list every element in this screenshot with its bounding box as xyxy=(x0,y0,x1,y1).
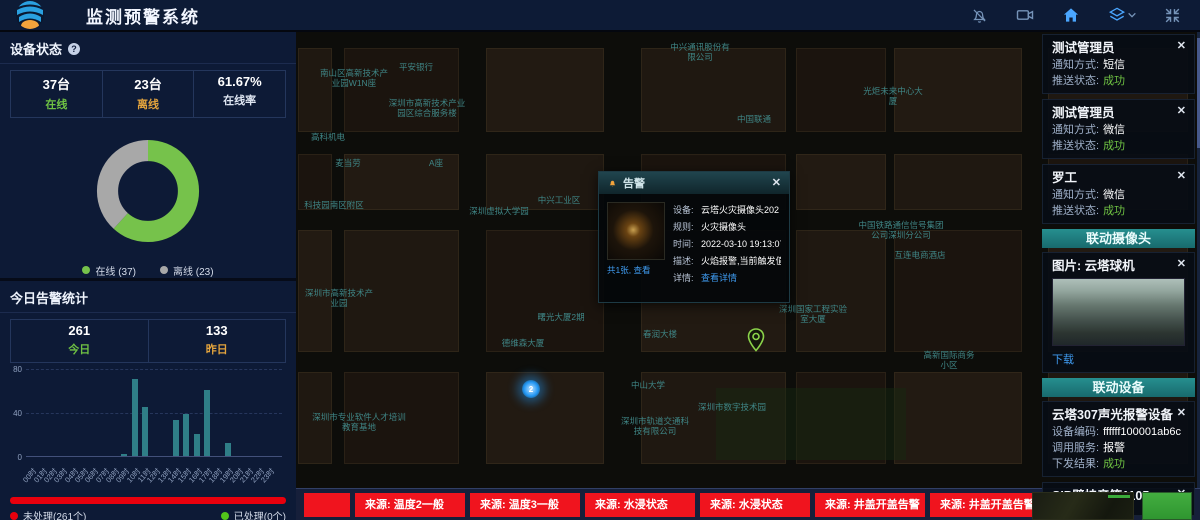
unhandled-label: 未处理(261个) xyxy=(23,508,86,520)
card-field-row: 调用服务:报警 xyxy=(1052,442,1185,455)
alert-popup-body: 共1张, 查看 设备:云塔火灾摄像头202规则:火灾摄像头时间:2022-03-… xyxy=(599,194,789,293)
alert-field-label: 设备: xyxy=(673,202,701,219)
camera-snapshot-title: 图片: 云塔球机 xyxy=(1052,259,1185,274)
rail-card: 罗工✕通知方式:微信推送状态:成功 xyxy=(1042,164,1195,224)
map-label: 深圳市数字技术园 xyxy=(694,402,770,412)
map-label: 中国联通 xyxy=(732,114,776,124)
y-axis-tick: 80 xyxy=(8,365,22,374)
unhandled-progress-track xyxy=(10,497,286,504)
alert-popup-header: 告警 ✕ xyxy=(599,172,789,194)
close-icon[interactable]: ✕ xyxy=(1177,106,1186,117)
card-field-value: 报警 xyxy=(1103,442,1125,455)
stat-cell: 23台离线 xyxy=(103,71,195,117)
close-icon[interactable]: ✕ xyxy=(1177,259,1186,270)
map-label: 互连电商酒店 xyxy=(892,250,948,260)
fullscreen-icon[interactable] xyxy=(1163,6,1182,25)
bar-chart-plot xyxy=(26,369,282,457)
gridline xyxy=(26,369,282,370)
rail-card: 云塔307声光报警设备✕设备编码:ffffff100001ab6c调用服务:报警… xyxy=(1042,401,1195,477)
today-alerts-table: 261今日133昨日 xyxy=(10,319,286,363)
map-building xyxy=(486,48,604,132)
handled-legend-item: 已处理(0个) xyxy=(221,508,286,520)
stat-label: 离线 xyxy=(103,96,194,112)
device-status-header: 设备状态 ? xyxy=(0,32,296,64)
alert-ticker-item[interactable]: 来源: 井盖开盖告警 xyxy=(815,493,925,517)
layers-icon[interactable] xyxy=(1107,5,1137,25)
map-park xyxy=(716,388,906,460)
bar xyxy=(132,379,138,456)
unhandled-legend-item: 未处理(261个) xyxy=(10,508,86,520)
alert-ticker-item[interactable]: 来源: 水浸状态 xyxy=(700,493,810,517)
linked-camera-header[interactable]: 联动摄像头 xyxy=(1042,229,1195,248)
legend-item: 在线 (37) xyxy=(82,262,136,278)
card-title: 测试管理员 xyxy=(1052,106,1185,121)
map-label: 曙光大厦2期 xyxy=(532,312,590,322)
map-label: 深圳虚拟大学园 xyxy=(464,206,534,216)
card-field-value: 成功 xyxy=(1103,75,1125,88)
stat-label: 今日 xyxy=(11,341,148,357)
camera-snapshot-image[interactable] xyxy=(1052,278,1185,346)
map-label: 春润大楼 xyxy=(638,329,682,339)
legend-dot-icon xyxy=(82,266,90,274)
today-alerts-section: 今日告警统计 261今日133昨日 80400 00时01时02时03时04时0… xyxy=(0,278,296,520)
hourly-alert-bar-chart: 80400 00时01时02时03时04时05时06时07时08时09时10时1… xyxy=(8,367,288,493)
map-building xyxy=(894,230,1022,352)
alert-field-value: 2022-03-10 19:13:07 xyxy=(701,236,781,253)
bottom-thumbnails xyxy=(1032,492,1192,520)
card-title: 测试管理员 xyxy=(1052,41,1185,56)
alert-field-value: 云塔火灾摄像头202 xyxy=(701,202,781,219)
map-building xyxy=(298,48,332,132)
legend-label: 离线 (23) xyxy=(173,263,214,278)
bar xyxy=(204,390,210,456)
alert-field-value: 火焰报警,当前触发值为... xyxy=(701,253,781,270)
card-title: 罗工 xyxy=(1052,171,1185,186)
card-field-value: 成功 xyxy=(1103,205,1125,218)
alert-field-label: 规则: xyxy=(673,219,701,236)
stat-value: 37台 xyxy=(11,74,102,93)
stat-value: 61.67% xyxy=(194,74,285,89)
blue-dot-count: 2 xyxy=(529,385,533,394)
alert-bell-icon xyxy=(607,177,618,189)
map-pin-green-icon[interactable] xyxy=(747,328,765,352)
map-label: A座 xyxy=(424,158,448,168)
video-thumbnail-dark[interactable] xyxy=(1032,492,1134,520)
stat-value: 261 xyxy=(11,323,148,338)
stat-value: 133 xyxy=(149,323,286,338)
alert-field-row: 时间:2022-03-10 19:13:07 xyxy=(673,236,781,253)
close-icon[interactable]: ✕ xyxy=(1177,41,1186,52)
download-link[interactable]: 下载 xyxy=(1052,351,1185,367)
map-label: 德维森大厦 xyxy=(496,338,550,348)
card-field-value: 成功 xyxy=(1103,140,1125,153)
card-field-value: ffffff100001ab6c xyxy=(1103,426,1181,439)
map-building xyxy=(796,154,886,210)
map-building xyxy=(894,154,1022,210)
card-title: 云塔307声光报警设备 xyxy=(1052,408,1185,423)
alert-field-row: 描述:火焰报警,当前触发值为... xyxy=(673,253,781,270)
map-label: 中国铁路通信信号集团公司深圳分公司 xyxy=(856,220,946,240)
alert-field-row: 详情:查看详情 xyxy=(673,270,781,287)
right-rail: 测试管理员✕通知方式:短信推送状态:成功测试管理员✕通知方式:微信推送状态:成功… xyxy=(1042,32,1200,520)
map-label: 深圳市高新技术产业园 xyxy=(304,288,374,308)
app-root: 监测预警系统 xyxy=(0,0,1200,520)
card-field-label: 通知方式: xyxy=(1052,124,1099,137)
card-field-label: 下发结果: xyxy=(1052,458,1099,471)
alert-ticker-item[interactable]: 来源: 温度3一般 xyxy=(470,493,580,517)
top-icon-group xyxy=(970,5,1182,25)
alert-popup-close-icon[interactable]: ✕ xyxy=(772,178,781,189)
red-dot-icon xyxy=(10,512,18,520)
alert-snapshot-link[interactable]: 共1张, 查看 xyxy=(607,264,667,276)
alert-snapshot-thumbnail[interactable] xyxy=(607,202,665,260)
map-marker-blue-dot[interactable]: 2 xyxy=(522,380,540,398)
linked-devices-header[interactable]: 联动设备 xyxy=(1042,378,1195,397)
card-field-label: 设备编码: xyxy=(1052,426,1099,439)
map-building xyxy=(344,48,459,132)
bar xyxy=(194,434,200,456)
stat-label: 昨日 xyxy=(149,341,286,357)
card-field-label: 推送状态: xyxy=(1052,140,1099,153)
alert-field-label: 描述: xyxy=(673,253,701,270)
alert-popup-title: 告警 xyxy=(623,175,767,191)
device-status-title: 设备状态 xyxy=(10,39,62,58)
alert-field-label: 详情: xyxy=(673,270,701,287)
close-icon[interactable]: ✕ xyxy=(1177,408,1186,419)
stat-cell: 133昨日 xyxy=(149,320,286,362)
card-field-label: 通知方式: xyxy=(1052,59,1099,72)
top-bar: 监测预警系统 xyxy=(0,0,1200,32)
app-logo-icon xyxy=(14,0,48,30)
rail-card: 测试管理员✕通知方式:短信推送状态:成功 xyxy=(1042,34,1195,94)
map-label: 平安银行 xyxy=(392,62,440,72)
alert-field-value: 火灾摄像头 xyxy=(701,219,781,236)
legend-item: 离线 (23) xyxy=(160,262,214,278)
y-axis-tick: 40 xyxy=(8,409,22,418)
map-building xyxy=(796,230,886,352)
map-label: 深圳市专业软件人才培训教育基地 xyxy=(312,412,406,432)
card-field-row: 推送状态:成功 xyxy=(1052,75,1185,88)
map-label: 高新国际商务小区 xyxy=(920,350,978,370)
camera-snapshot-card: 图片: 云塔球机 ✕ 下载 xyxy=(1042,252,1195,373)
map-label: 深圳市轨道交通科技有限公司 xyxy=(620,416,690,436)
gridline xyxy=(26,413,282,414)
map-label: 科技园南区附区 xyxy=(298,200,370,210)
card-field-row: 设备编码:ffffff100001ab6c xyxy=(1052,426,1185,439)
close-icon[interactable]: ✕ xyxy=(1177,171,1186,182)
map-label: 南山区高新技术产业园W1N座 xyxy=(316,68,392,88)
map-label: 高科机电 xyxy=(306,132,350,142)
donut-legend: 在线 (37)离线 (23) xyxy=(0,262,296,278)
alert-detail-link[interactable]: 查看详情 xyxy=(701,270,781,287)
today-alerts-header: 今日告警统计 xyxy=(0,281,296,313)
map-label: 中兴工业区 xyxy=(532,195,586,205)
stat-label: 在线率 xyxy=(194,92,285,108)
stat-cell: 261今日 xyxy=(11,320,149,362)
page-title: 监测预警系统 xyxy=(86,3,200,28)
home-icon[interactable] xyxy=(1061,5,1081,25)
bar xyxy=(225,443,231,456)
alert-popup: 告警 ✕ 共1张, 查看 设备:云塔火灾摄像头202规则:火灾摄像头时间:202… xyxy=(598,171,790,303)
map-label: 深圳国家工程实验室大厦 xyxy=(778,304,848,324)
alert-field-row: 规则:火灾摄像头 xyxy=(673,219,781,236)
legend-dot-icon xyxy=(160,266,168,274)
video-thumbnail-green[interactable] xyxy=(1142,492,1192,520)
map-label: 中山大学 xyxy=(626,380,670,390)
card-field-label: 推送状态: xyxy=(1052,75,1099,88)
alert-ticker-item-partial[interactable] xyxy=(304,493,350,517)
map-building xyxy=(486,372,604,464)
alert-field-row: 设备:云塔火灾摄像头202 xyxy=(673,202,781,219)
stat-value: 23台 xyxy=(103,74,194,93)
bar xyxy=(183,414,189,456)
card-field-label: 调用服务: xyxy=(1052,442,1099,455)
today-alerts-title: 今日告警统计 xyxy=(10,288,88,307)
card-field-row: 推送状态:成功 xyxy=(1052,205,1185,218)
device-donut-chart xyxy=(0,122,296,260)
x-axis-label: 23时 xyxy=(229,461,269,479)
unhandled-progress-bar xyxy=(10,497,286,504)
bar xyxy=(173,420,179,456)
card-field-value: 微信 xyxy=(1103,124,1125,137)
bar xyxy=(142,407,148,457)
alert-ticker-item[interactable]: 来源: 水浸状态 xyxy=(585,493,695,517)
bar xyxy=(121,454,127,456)
card-field-row: 通知方式:微信 xyxy=(1052,189,1185,202)
card-field-label: 推送状态: xyxy=(1052,205,1099,218)
map-label: 深圳市高新技术产业园区综合服务楼 xyxy=(386,98,468,118)
rail-card: 测试管理员✕通知方式:微信推送状态:成功 xyxy=(1042,99,1195,159)
map-label: 麦当劳 xyxy=(328,158,368,168)
handled-label: 已处理(0个) xyxy=(234,508,286,520)
card-field-row: 通知方式:微信 xyxy=(1052,124,1185,137)
map-building xyxy=(894,372,1022,464)
legend-label: 在线 (37) xyxy=(95,263,136,278)
video-camera-icon[interactable] xyxy=(1015,5,1035,25)
stat-cell: 37台在线 xyxy=(11,71,103,117)
stat-cell: 61.67%在线率 xyxy=(194,71,285,117)
card-field-label: 通知方式: xyxy=(1052,189,1099,202)
chevron-down-icon xyxy=(1127,10,1137,20)
progress-legend: 未处理(261个) 已处理(0个) xyxy=(10,508,286,520)
card-field-value: 微信 xyxy=(1103,189,1125,202)
device-status-table: 37台在线23台离线61.67%在线率 xyxy=(10,70,286,118)
alert-ticker-item[interactable]: 来源: 井盖开盖告警 xyxy=(930,493,1040,517)
map-label: 中兴通讯股份有限公司 xyxy=(668,42,732,62)
alert-field-label: 时间: xyxy=(673,236,701,253)
green-dot-icon xyxy=(221,512,229,520)
map-building xyxy=(486,230,604,352)
card-field-row: 下发结果:成功 xyxy=(1052,458,1185,471)
map-label: 光炬未来中心大厦 xyxy=(860,86,926,106)
left-panel: 设备状态 ? 37台在线23台离线61.67%在线率 在线 (37)离线 (23… xyxy=(0,32,296,520)
stat-label: 在线 xyxy=(11,96,102,112)
card-field-value: 成功 xyxy=(1103,458,1125,471)
card-field-value: 短信 xyxy=(1103,59,1125,72)
bell-muted-icon[interactable] xyxy=(970,6,989,25)
alert-ticker-item[interactable]: 来源: 温度2一般 xyxy=(355,493,465,517)
card-field-row: 通知方式:短信 xyxy=(1052,59,1185,72)
device-status-section: 设备状态 ? 37台在线23台离线61.67%在线率 在线 (37)离线 (23… xyxy=(0,32,296,278)
card-field-row: 推送状态:成功 xyxy=(1052,140,1185,153)
help-icon[interactable]: ? xyxy=(68,43,80,55)
